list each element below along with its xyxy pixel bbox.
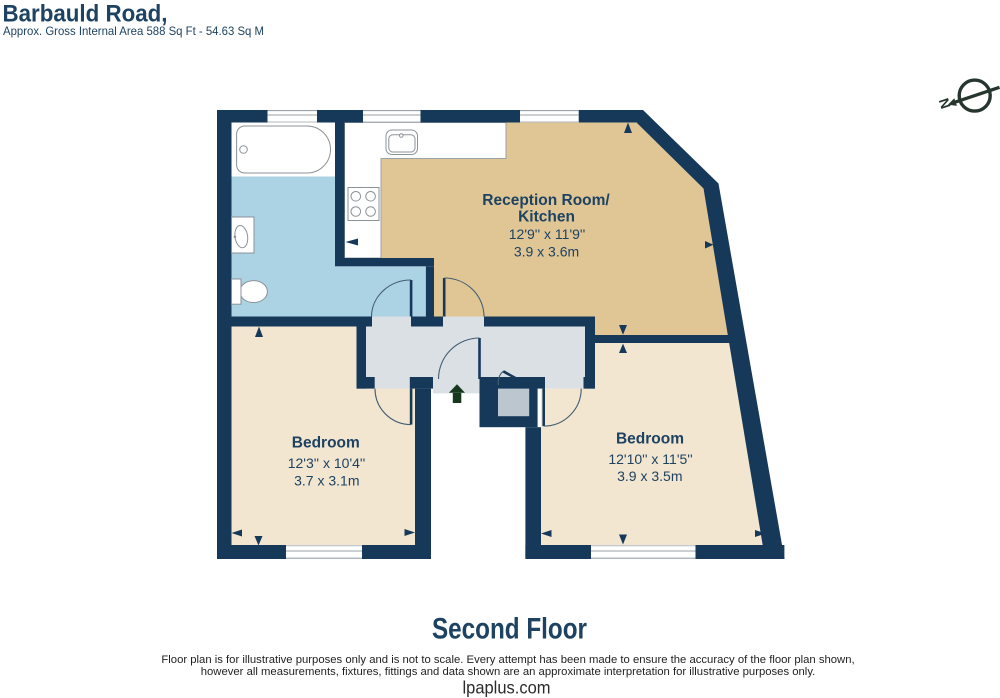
svg-text:Floor plan is for illustrative: Floor plan is for illustrative purposes … [161, 654, 854, 666]
svg-text:12'9'' x 11'9'': 12'9'' x 11'9'' [509, 226, 586, 242]
svg-text:Bedroom: Bedroom [292, 435, 360, 452]
svg-text:Kitchen: Kitchen [518, 209, 575, 226]
svg-text:lpaplus.com: lpaplus.com [463, 678, 551, 698]
svg-text:12'3'' x 10'4'': 12'3'' x 10'4'' [288, 455, 366, 471]
svg-text:Second Floor: Second Floor [432, 613, 587, 646]
svg-text:12'10'' x 11'5'': 12'10'' x 11'5'' [608, 451, 692, 467]
svg-text:3.9 x 3.5m: 3.9 x 3.5m [617, 468, 682, 484]
svg-text:3.9 x 3.6m: 3.9 x 3.6m [514, 243, 579, 259]
svg-text:Reception Room/: Reception Room/ [482, 192, 610, 209]
svg-text:Bedroom: Bedroom [616, 431, 684, 448]
svg-text:however all measurements, fixt: however all measurements, fixtures, fitt… [201, 666, 816, 678]
svg-text:Approx. Gross Internal Area 58: Approx. Gross Internal Area 588 Sq Ft - … [3, 24, 264, 38]
svg-text:3.7 x 3.1m: 3.7 x 3.1m [294, 473, 359, 489]
